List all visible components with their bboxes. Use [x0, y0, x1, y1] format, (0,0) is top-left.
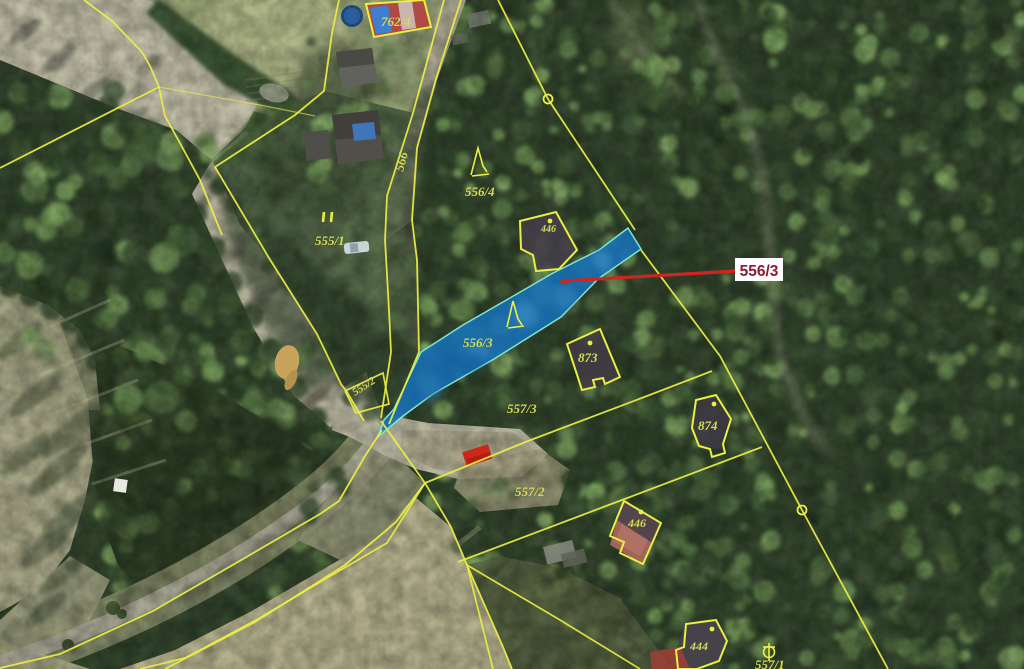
svg-text:446: 446 — [540, 224, 556, 235]
svg-text:555/1: 555/1 — [315, 233, 345, 248]
svg-text:874: 874 — [698, 418, 718, 433]
svg-text:556/3: 556/3 — [463, 335, 493, 350]
svg-text:557/3: 557/3 — [507, 401, 537, 416]
svg-text:556/3: 556/3 — [740, 263, 779, 280]
svg-text:557/2: 557/2 — [515, 484, 545, 499]
svg-text:762/4: 762/4 — [381, 14, 411, 29]
svg-text:444: 444 — [689, 639, 708, 653]
svg-text:446: 446 — [627, 516, 646, 530]
svg-text:556/4: 556/4 — [465, 184, 495, 199]
svg-text:873: 873 — [578, 350, 598, 365]
svg-text:557/1: 557/1 — [755, 657, 785, 669]
